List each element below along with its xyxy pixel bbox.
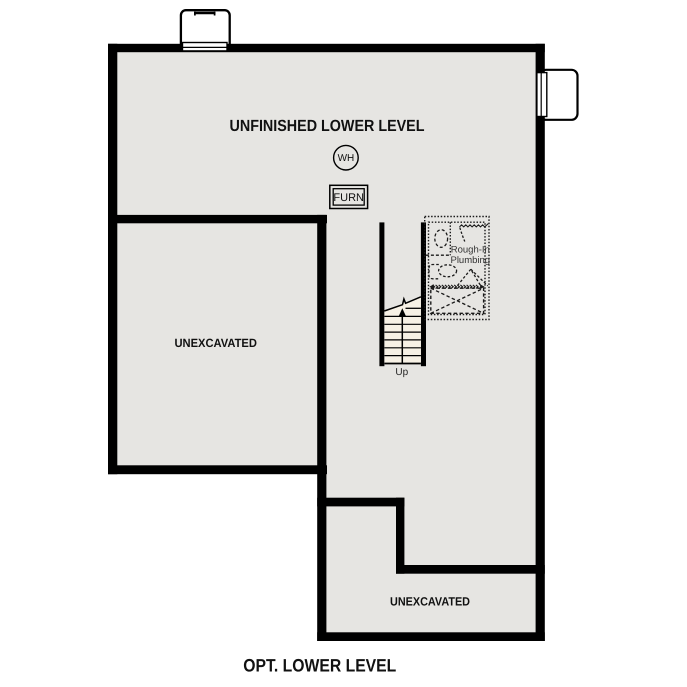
svg-text:UNFINISHED LOWER LEVEL: UNFINISHED LOWER LEVEL [230,117,425,135]
svg-text:Rough-In: Rough-In [451,244,490,255]
svg-text:UNEXCAVATED: UNEXCAVATED [390,594,470,608]
svg-text:WH: WH [338,153,355,164]
svg-text:FURN: FURN [333,192,364,204]
svg-text:UNEXCAVATED: UNEXCAVATED [174,336,257,350]
svg-text:Plumbing: Plumbing [450,255,490,266]
svg-text:Up: Up [395,367,408,378]
svg-text:OPT. LOWER LEVEL: OPT. LOWER LEVEL [243,656,396,676]
